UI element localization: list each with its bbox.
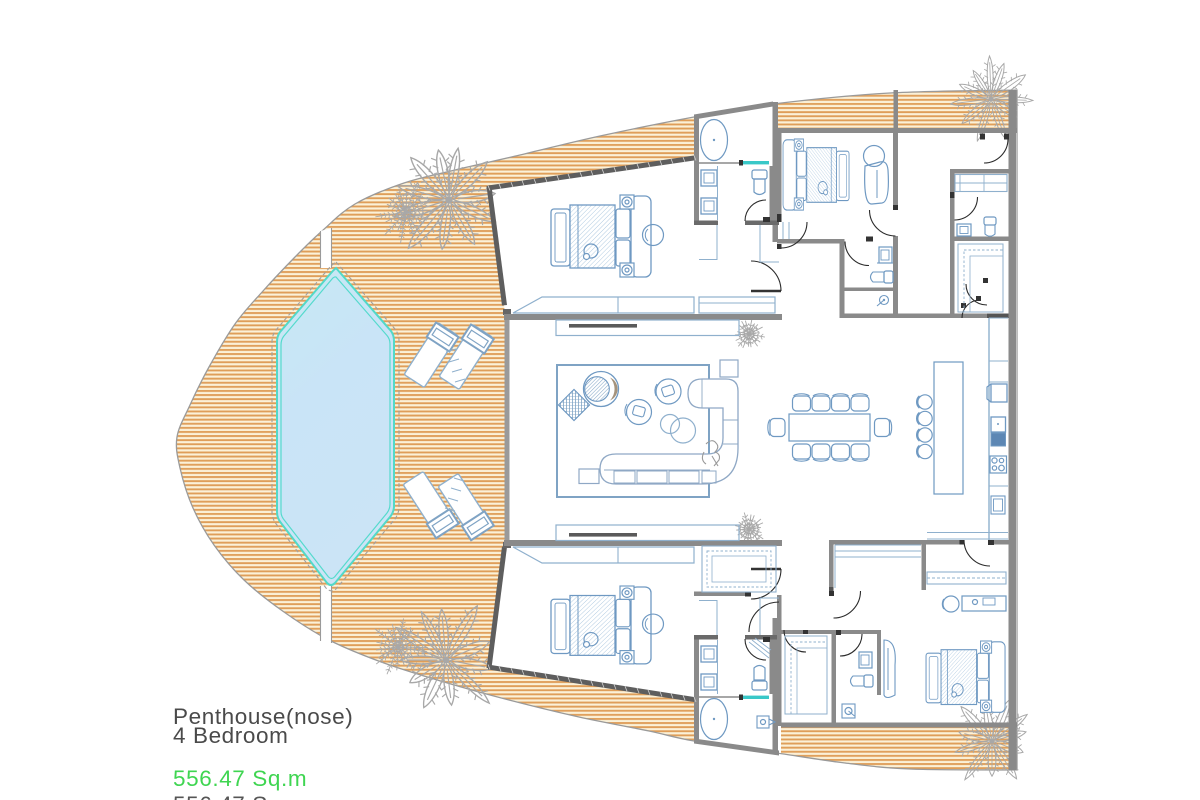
svg-text:4 Bedroom: 4 Bedroom [173,723,288,748]
svg-text:556.47 Sq.m: 556.47 Sq.m [173,766,307,791]
svg-text:556.47 Sq.m: 556.47 Sq.m [173,792,307,800]
